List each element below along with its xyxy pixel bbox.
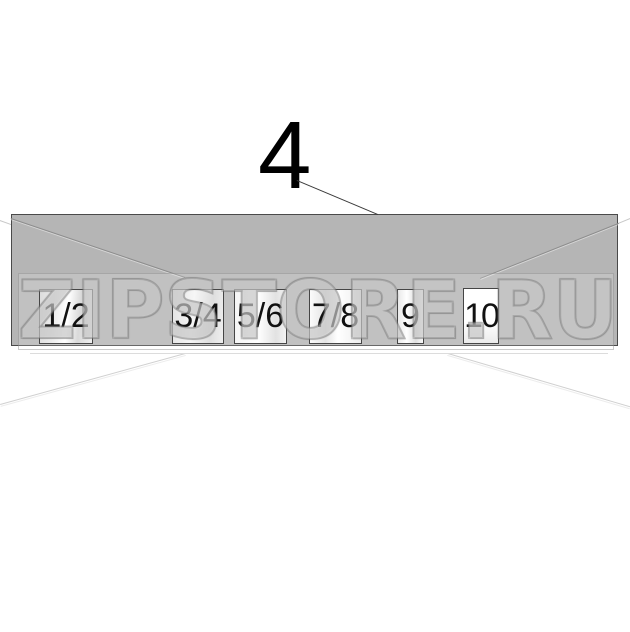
- band-shadow-line: [30, 353, 608, 354]
- construction-line-bottom-left: [0, 353, 185, 405]
- construction-line-bottom-right: [448, 353, 630, 407]
- callout-box-label: 9: [401, 297, 420, 336]
- callout-box-10: 10: [463, 288, 499, 344]
- callout-box-label: 10: [464, 297, 498, 336]
- callout-box-9: 9: [397, 289, 424, 344]
- callout-box-5-6: 5/6: [234, 289, 287, 344]
- callout-box-3-4: 3/4: [172, 289, 224, 344]
- callout-box-7-8: 7/8: [309, 289, 362, 344]
- construction-line-top-right-ext: [618, 218, 630, 224]
- callout-box-label: 3/4: [174, 297, 221, 336]
- callout-box-1-2: 1/2: [39, 289, 93, 344]
- callout-number: 4: [258, 108, 311, 204]
- callout-box-label: 7/8: [312, 297, 359, 336]
- callout-box-label: 1/2: [42, 297, 89, 336]
- parts-diagram-canvas: 1/2 3/4 5/6 7/8 9 10 ZIPSTORE.RU 4: [0, 0, 630, 632]
- construction-line-top-left-ext: [0, 220, 11, 225]
- callout-box-label: 5/6: [237, 297, 284, 336]
